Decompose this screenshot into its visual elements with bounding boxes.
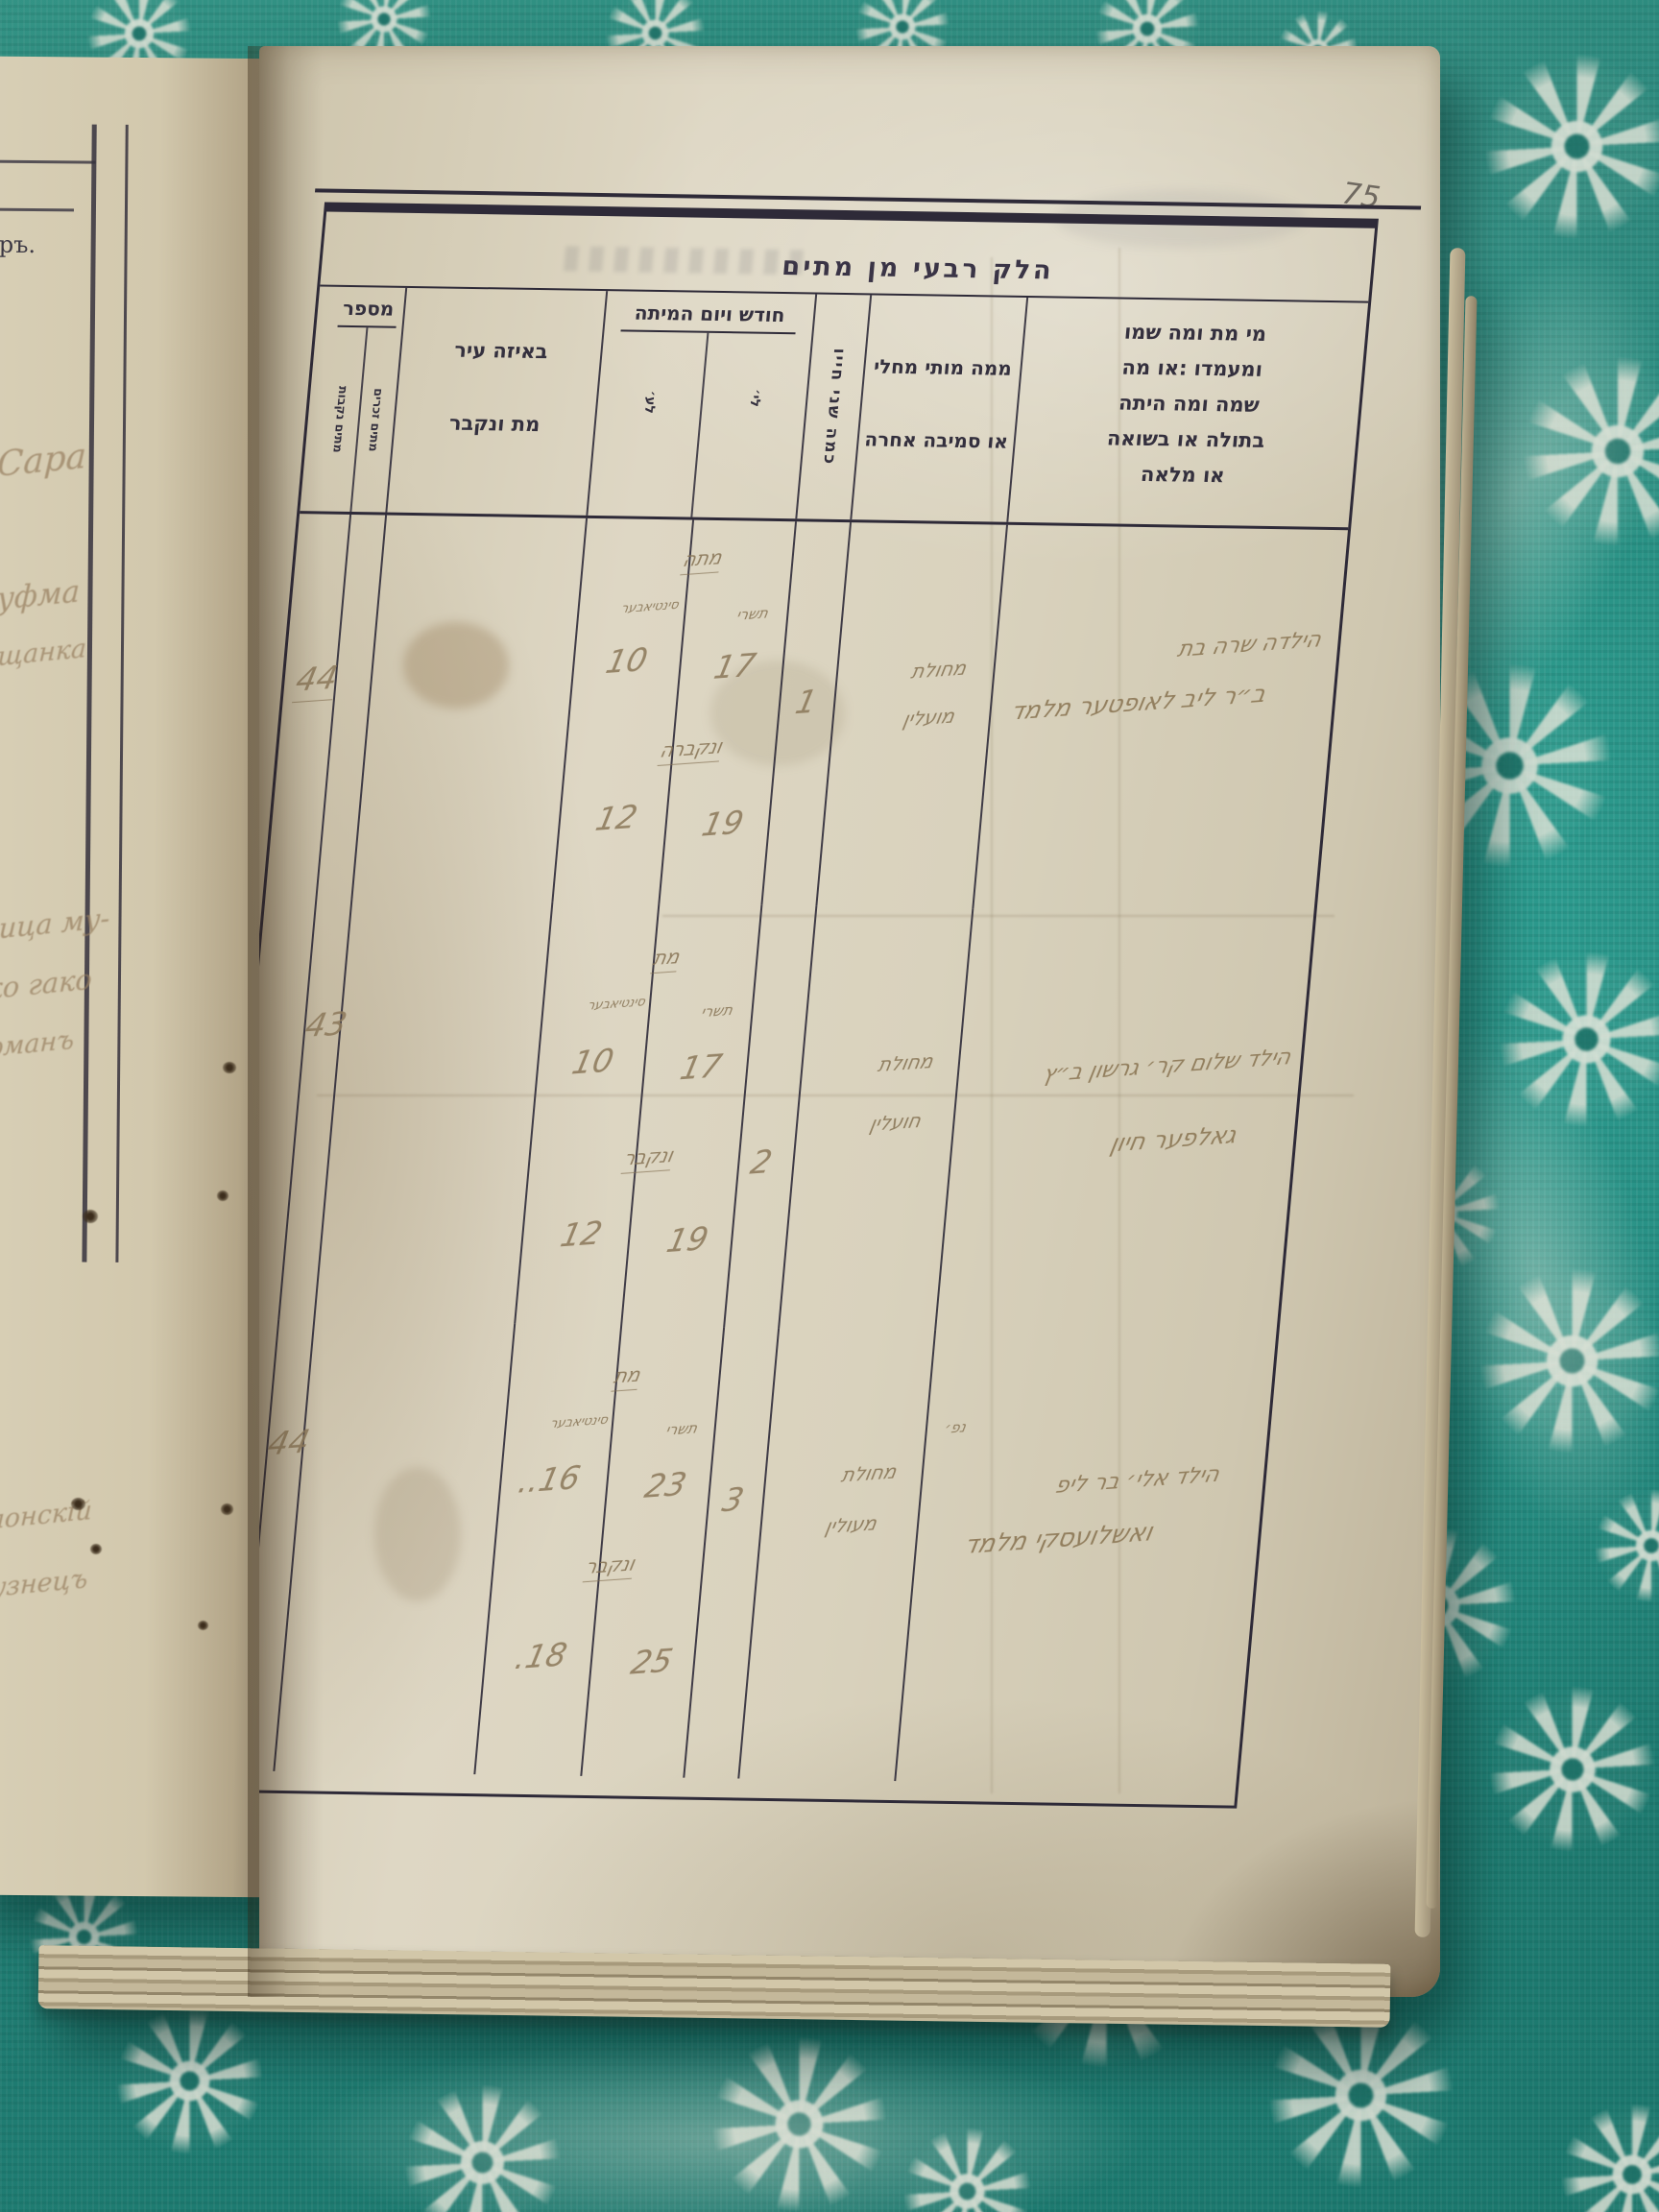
lace-flower bbox=[1267, 2002, 1455, 2189]
entry-month-civil: סינטיאבער bbox=[620, 598, 681, 616]
header-rotated-label: לע׳ bbox=[640, 391, 658, 414]
entry-name-line: ב״ר ליב לאופטער מלמד bbox=[1008, 679, 1268, 725]
left-page-rule bbox=[0, 160, 95, 164]
photo-scene: еръ. Сара Шуфма мѣщанка ица му- тко гако… bbox=[0, 0, 1659, 2212]
cell-name-row1: הילדה שרה בת ב״ר ליב לאופטער מלמד bbox=[972, 525, 1348, 914]
lace-flower bbox=[1488, 1685, 1656, 1853]
left-page-handwriting: берманъ bbox=[0, 1025, 75, 1067]
binding-hole bbox=[198, 1621, 208, 1630]
entry-died-day-jewish: 17 bbox=[710, 646, 759, 686]
entry-name-line: הילדה שרה בת bbox=[1175, 627, 1323, 662]
table-title: הלק רבעי מן מתים bbox=[781, 252, 1055, 285]
entry-name-note: נפ׳ bbox=[943, 1418, 968, 1437]
left-page-handwriting: Шуфма bbox=[0, 574, 81, 620]
entry-died-word: מתה bbox=[680, 545, 724, 575]
header-rotated-label: לי׳ bbox=[746, 389, 763, 407]
page-number: 75 bbox=[1340, 176, 1382, 215]
entry-age: 1 bbox=[792, 682, 820, 721]
entry-month-jewish: תשרי bbox=[699, 1001, 733, 1022]
entry-buried-day-jewish: 19 bbox=[699, 803, 748, 843]
entry-month-jewish: תשרי bbox=[663, 1419, 698, 1439]
entry-age: 2 bbox=[747, 1142, 775, 1182]
date-subcolumns: לי׳ לע׳ bbox=[588, 331, 811, 518]
binding-hole bbox=[217, 1190, 228, 1201]
binding-hole bbox=[71, 1498, 85, 1510]
column-header-who-died: מי מת ומה שמו ומעמדו :או מה שמה ומה היתה… bbox=[1006, 298, 1368, 527]
binding-hole bbox=[223, 1062, 236, 1073]
binding-hole bbox=[90, 1544, 102, 1554]
entry-died-word: מת bbox=[611, 1362, 642, 1391]
left-page-handwriting: Сара bbox=[0, 436, 87, 484]
entry-died-day-civil: 16.. bbox=[515, 1458, 584, 1501]
entry-cause-line: מעולין bbox=[823, 1511, 878, 1538]
entry-buried-day-jewish: 25 bbox=[628, 1641, 677, 1681]
entry-buried-word: ונקבר bbox=[583, 1551, 637, 1582]
table-header: מי מת ומה שמו ומעמדו :או מה שמה ומה היתה… bbox=[300, 284, 1368, 530]
entry-cause-line: מחולת bbox=[877, 1049, 936, 1076]
entry-name-line: גאלפער חיון bbox=[1108, 1120, 1239, 1158]
entry-buried-day-jewish: 19 bbox=[663, 1219, 712, 1260]
left-page-handwriting: мѣщанка bbox=[0, 634, 87, 677]
left-page-handwriting: тко гако bbox=[0, 962, 93, 1008]
entry-name-line: ואשלועסקי מלמד bbox=[962, 1518, 1156, 1560]
left-page-handwriting: узнецъ bbox=[0, 1564, 88, 1603]
header-rotated-label: מתים זכרים bbox=[367, 388, 387, 451]
entry-cause-line: מחולת bbox=[909, 656, 969, 683]
column-header-cause-of-death: ממה מותי מחלי או סמיבה אחרה bbox=[850, 295, 1026, 521]
cell-city-row3 bbox=[273, 1320, 514, 1774]
entry-cause-line: חועלין bbox=[867, 1109, 923, 1136]
header-line: באיזה עיר bbox=[400, 338, 601, 364]
entry-cause-line: מחולת bbox=[839, 1459, 899, 1486]
column-header-city: באיזה עיר מת ונקבר bbox=[385, 288, 606, 516]
binding-hole bbox=[221, 1503, 233, 1515]
right-page: 75 הלק רבעי מן מתים מי מת ומה שמו bbox=[259, 46, 1440, 1997]
header-rotated-label: כמה שני חייו bbox=[819, 349, 849, 467]
header-rotated-label: מתים נקבות bbox=[330, 386, 350, 453]
ink-bleed-ghost bbox=[564, 246, 815, 275]
cell-name-row2: הילד שלום קר׳ גרשון ב״ץ גאלפער חיון bbox=[934, 908, 1313, 1335]
left-page-rule bbox=[0, 208, 74, 212]
entry-died-day-civil: 10 bbox=[568, 1041, 617, 1081]
entry-buried-word: ונקבר bbox=[621, 1143, 676, 1174]
header-line: שמה ומה היתה bbox=[1035, 384, 1343, 424]
entry-age: 3 bbox=[719, 1479, 747, 1519]
entry-died-word: מת bbox=[650, 945, 682, 974]
header-line: מי מת ומה שמו bbox=[1041, 313, 1349, 353]
register-table: הלק רבעי מן מתים מי מת ומה שמו ומעמדו :א… bbox=[259, 203, 1379, 1809]
subcolumn-jewish-date: לי׳ bbox=[690, 333, 811, 518]
entry-buried-day-civil: 18. bbox=[512, 1635, 570, 1676]
table-body: הילדה שרה בת ב״ר ליב לאופטער מלמד מחולת … bbox=[259, 514, 1348, 1786]
header-line: או סמיבה אחרה bbox=[858, 427, 1015, 452]
entry-name-line: הילד שלום קר׳ גרשון ב״ץ bbox=[1041, 1045, 1293, 1088]
subcolumn-civil-date: לע׳ bbox=[588, 331, 707, 517]
entry-month-civil: סינטיאבער bbox=[549, 1413, 610, 1431]
lace-flower bbox=[115, 2007, 264, 2155]
entry-buried-day-civil: 12 bbox=[592, 798, 641, 838]
left-page-border bbox=[82, 125, 128, 1262]
header-line: או מלאה bbox=[1028, 455, 1336, 495]
entry-cause-line: מועלין bbox=[901, 704, 956, 731]
cell-city-row1 bbox=[350, 516, 586, 902]
header-line: ומעמדו :או מה bbox=[1038, 349, 1346, 389]
entry-name-line: הילד אלי׳ בר ליפ bbox=[1053, 1462, 1222, 1499]
lace-flower bbox=[1483, 53, 1659, 240]
header-line: ממה מותי מחלי bbox=[864, 354, 1021, 379]
register-book: еръ. Сара Шуфма мѣщанка ица му- тко гако… bbox=[0, 46, 1469, 2005]
column-header-death-date: חודש ויום המיתה לי׳ לע׳ bbox=[586, 291, 815, 518]
binding-hole bbox=[83, 1210, 98, 1223]
entry-died-day-civil: 10 bbox=[603, 640, 652, 681]
entry-died-day-jewish: 17 bbox=[677, 1046, 726, 1087]
entry-month-jewish: תשרי bbox=[734, 604, 769, 624]
entry-buried-word: ונקברה bbox=[658, 734, 725, 766]
left-page-printed-fragment: еръ. bbox=[0, 231, 36, 258]
entry-died-day-jewish: 23 bbox=[641, 1465, 690, 1505]
cell-name-row3: נפ׳ הילד אלי׳ בר ליפ ואשלועסקי מלמד bbox=[894, 1331, 1276, 1787]
header-line: מספר bbox=[331, 287, 405, 328]
header-line: בתולה או בשואה bbox=[1032, 420, 1340, 460]
cell-city-row2 bbox=[313, 899, 551, 1324]
entry-month-civil: סינטיאבער bbox=[587, 995, 647, 1013]
header-line: חודש ויום המיתה bbox=[604, 291, 815, 334]
entry-buried-day-civil: 12 bbox=[557, 1214, 606, 1254]
header-line: מת ונקבר bbox=[395, 411, 595, 437]
